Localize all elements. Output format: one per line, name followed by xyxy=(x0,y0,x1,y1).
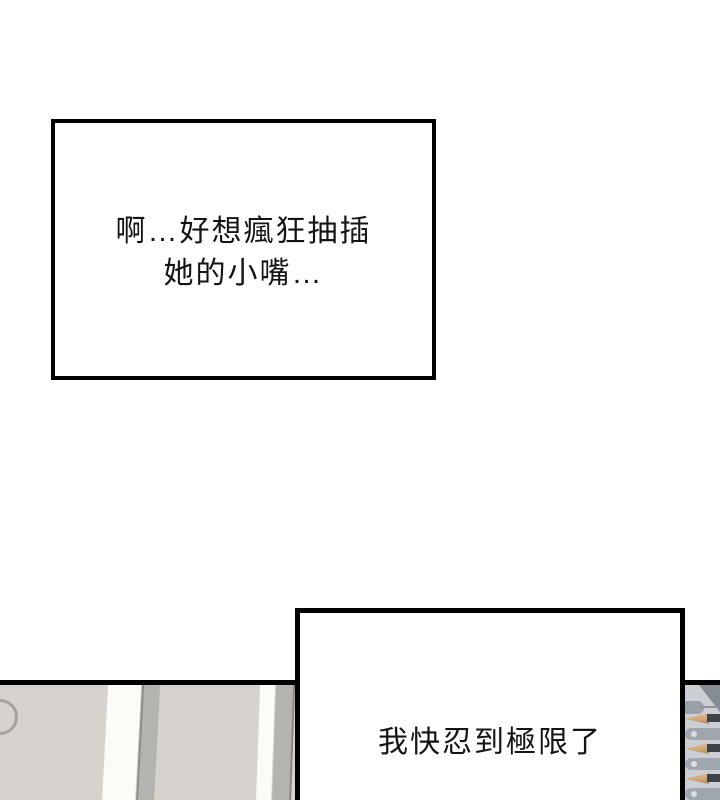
door-handle-arc-icon xyxy=(0,699,18,735)
comic-panel-closet xyxy=(0,680,295,800)
speech-bubble-top-text: 啊…好想瘋狂抽插 她的小嘴… xyxy=(116,211,372,295)
knife-blade-hole xyxy=(691,791,697,797)
knife-tang xyxy=(707,774,720,782)
knife-edge-line xyxy=(699,706,720,708)
speech-line-2: 她的小嘴… xyxy=(116,253,372,295)
knife-handle xyxy=(685,713,709,724)
knife-blade-hole xyxy=(691,761,697,767)
comic-panel-knife-rack xyxy=(685,680,720,800)
speech-bubble-bottom: 我快忍到極限了 xyxy=(295,608,685,800)
knife-tang xyxy=(707,744,720,752)
knife-icon xyxy=(685,773,720,800)
webtoon-page: 啊…好想瘋狂抽插 她的小嘴… xyxy=(0,0,720,800)
knife-tang xyxy=(707,714,720,722)
closet-door-white-strip xyxy=(101,680,141,800)
knife-icon xyxy=(685,743,720,773)
knife-handle xyxy=(685,773,709,784)
knife-icon xyxy=(685,713,720,743)
speech-line-1: 啊…好想瘋狂抽插 xyxy=(116,211,372,253)
knife-blade-hole xyxy=(691,731,697,737)
speech-bubble-bottom-text: 我快忍到極限了 xyxy=(300,721,680,765)
speech-bubble-top: 啊…好想瘋狂抽插 她的小嘴… xyxy=(51,119,436,380)
closet-door-gray-strip xyxy=(272,680,295,800)
knife-handle xyxy=(685,743,709,754)
